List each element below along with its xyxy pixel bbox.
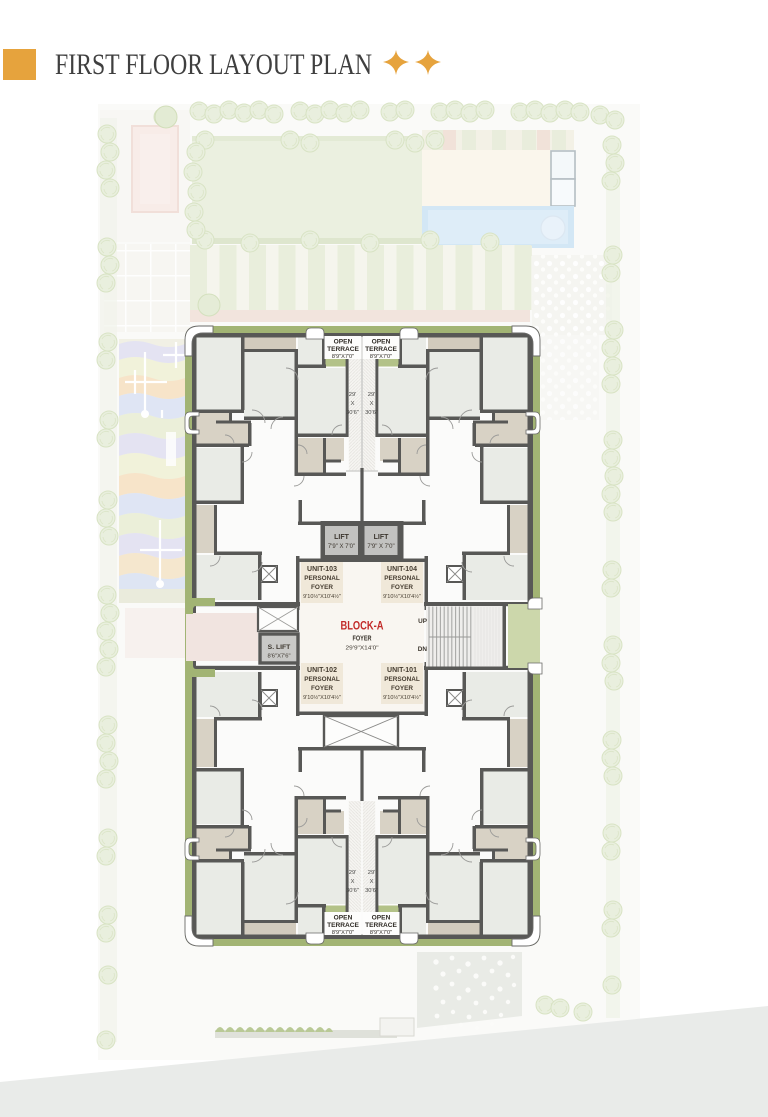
- svg-text:UP: UP: [418, 618, 428, 625]
- svg-text:29': 29': [349, 870, 357, 876]
- svg-text:X: X: [370, 401, 374, 407]
- svg-text:UNIT-103: UNIT-103: [307, 566, 337, 573]
- svg-text:8'9"X7'0": 8'9"X7'0": [370, 930, 392, 936]
- svg-text:S. LIFT: S. LIFT: [268, 644, 292, 651]
- svg-text:BLOCK-A: BLOCK-A: [341, 619, 384, 633]
- svg-text:8'9"X7'0": 8'9"X7'0": [370, 354, 392, 360]
- svg-text:DN: DN: [418, 646, 428, 653]
- svg-text:29'9"X14'0": 29'9"X14'0": [346, 646, 379, 652]
- svg-text:UNIT-102: UNIT-102: [307, 667, 337, 674]
- svg-text:9'10½"X10'4½": 9'10½"X10'4½": [383, 694, 421, 701]
- svg-text:8'6"X7'6": 8'6"X7'6": [267, 654, 290, 660]
- svg-text:LIFT: LIFT: [374, 534, 389, 541]
- svg-text:PERSONAL: PERSONAL: [304, 575, 340, 582]
- svg-text:FOYER: FOYER: [311, 584, 333, 591]
- svg-text:TERRACE: TERRACE: [327, 922, 359, 929]
- svg-text:9'10½"X10'4½": 9'10½"X10'4½": [303, 694, 341, 701]
- svg-text:TERRACE: TERRACE: [327, 346, 359, 353]
- svg-text:29': 29': [368, 870, 376, 876]
- svg-text:OPEN: OPEN: [372, 915, 391, 922]
- svg-text:FOYER: FOYER: [391, 584, 413, 591]
- svg-text:UNIT-101: UNIT-101: [387, 667, 417, 674]
- svg-text:PERSONAL: PERSONAL: [304, 676, 340, 683]
- svg-text:FIRST FLOOR LAYOUT PLAN: FIRST FLOOR LAYOUT PLAN: [55, 48, 372, 81]
- svg-text:UNIT-104: UNIT-104: [387, 566, 417, 573]
- svg-text:30'6": 30'6": [346, 888, 359, 894]
- svg-text:X: X: [370, 879, 374, 885]
- svg-text:PERSONAL: PERSONAL: [384, 676, 420, 683]
- svg-text:PERSONAL: PERSONAL: [384, 575, 420, 582]
- svg-text:TERRACE: TERRACE: [365, 922, 397, 929]
- svg-text:LIFT: LIFT: [334, 534, 349, 541]
- svg-text:OPEN: OPEN: [334, 339, 353, 346]
- svg-text:7'9" X 7'0": 7'9" X 7'0": [328, 544, 355, 550]
- svg-text:29': 29': [368, 392, 376, 398]
- svg-text:9'10½"X10'4½": 9'10½"X10'4½": [383, 593, 421, 600]
- svg-text:30'6": 30'6": [365, 888, 378, 894]
- svg-text:30'6": 30'6": [365, 410, 378, 416]
- svg-text:29': 29': [349, 392, 357, 398]
- svg-text:9'10½"X10'4½": 9'10½"X10'4½": [303, 593, 341, 600]
- svg-text:FOYER: FOYER: [311, 685, 333, 692]
- svg-text:FOYER: FOYER: [391, 685, 413, 692]
- svg-text:X: X: [351, 879, 355, 885]
- svg-text:OPEN: OPEN: [372, 339, 391, 346]
- svg-text:TERRACE: TERRACE: [365, 346, 397, 353]
- svg-text:OPEN: OPEN: [334, 915, 353, 922]
- svg-text:8'9"X7'0": 8'9"X7'0": [332, 930, 354, 936]
- svg-text:8'9"X7'0": 8'9"X7'0": [332, 354, 354, 360]
- svg-text:30'6": 30'6": [346, 410, 359, 416]
- svg-text:X: X: [351, 401, 355, 407]
- svg-text:FOYER: FOYER: [353, 634, 373, 643]
- svg-text:7'9" X 7'0": 7'9" X 7'0": [367, 544, 394, 550]
